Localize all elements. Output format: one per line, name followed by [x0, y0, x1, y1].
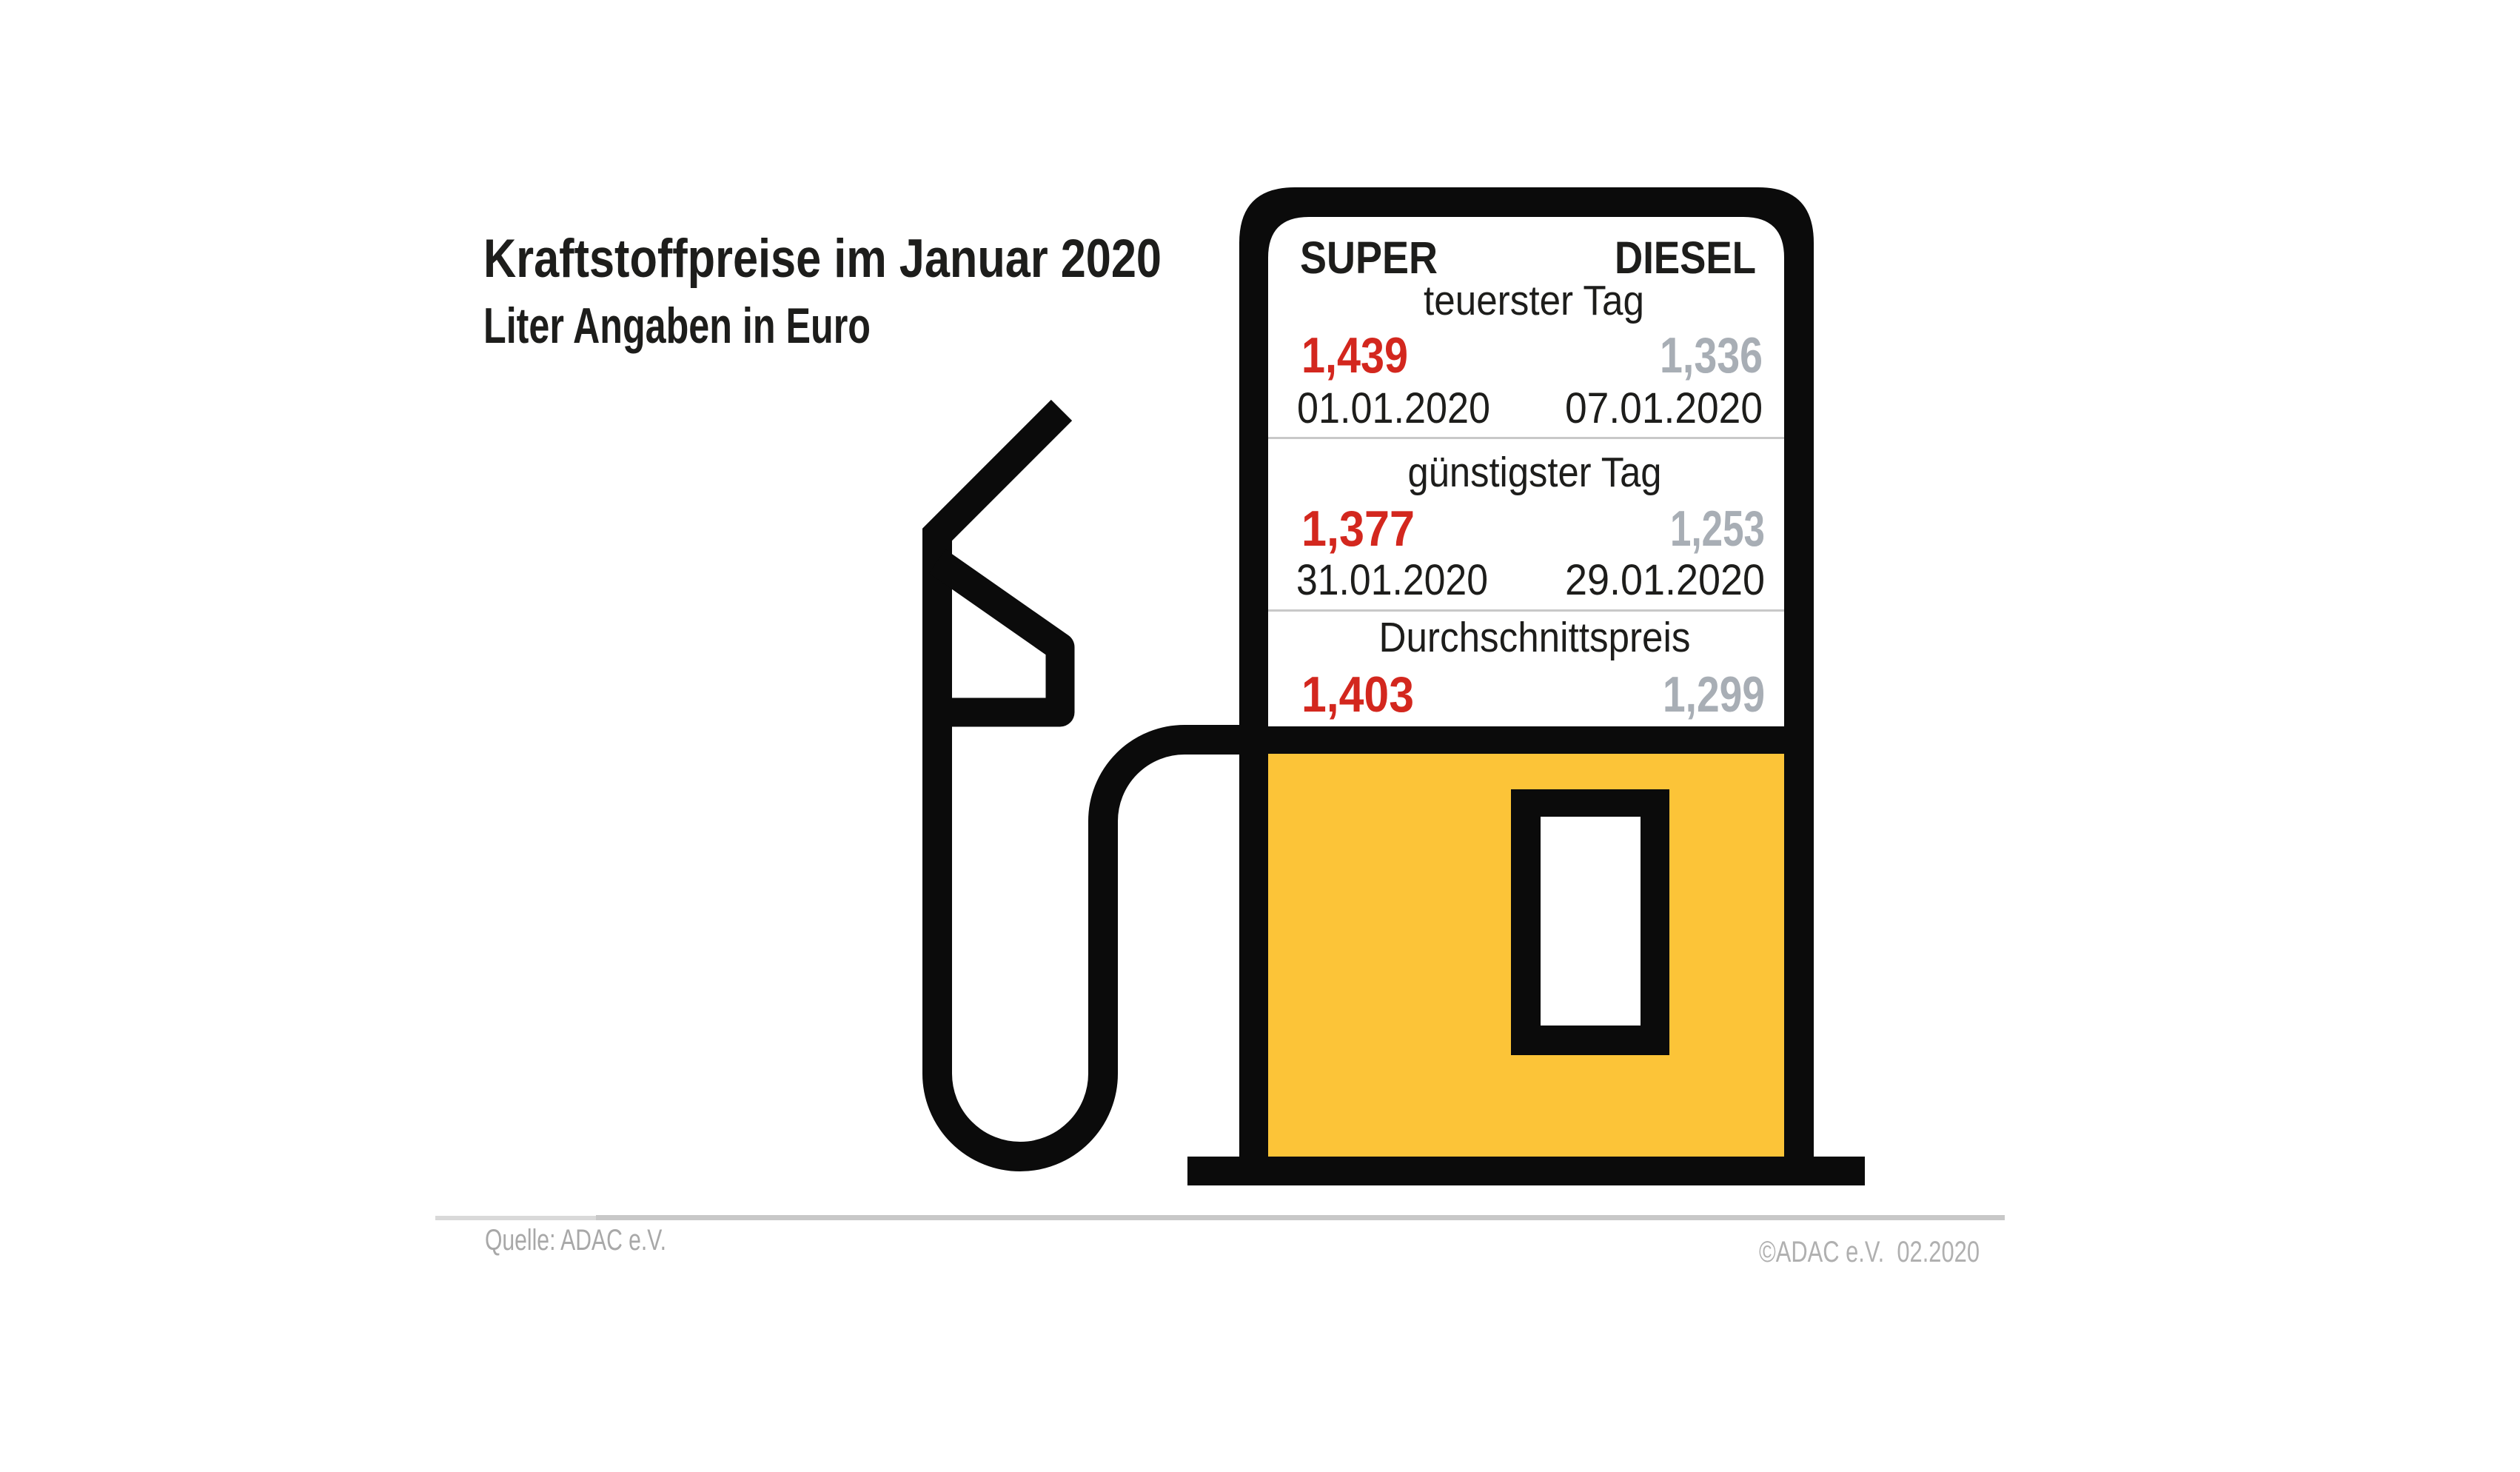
- svg-text:SUPER: SUPER: [1300, 232, 1438, 283]
- svg-text:29.01.2020: 29.01.2020: [1565, 556, 1765, 604]
- svg-text:1,253: 1,253: [1670, 501, 1765, 557]
- svg-text:Durchschnittspreis: Durchschnittspreis: [1379, 614, 1691, 661]
- svg-text:Kraftstoffpreise im Januar 202: Kraftstoffpreise im Januar 2020: [483, 229, 1162, 289]
- svg-text:01.01.2020: 01.01.2020: [1297, 384, 1490, 432]
- svg-text:07.01.2020: 07.01.2020: [1565, 384, 1763, 432]
- svg-text:1,299: 1,299: [1663, 666, 1765, 723]
- svg-text:Quelle: ADAC e.V.: Quelle: ADAC e.V.: [485, 1224, 666, 1257]
- svg-text:teuerster Tag: teuerster Tag: [1424, 277, 1644, 324]
- svg-text:1,336: 1,336: [1660, 327, 1763, 384]
- svg-text:Liter Angaben in Euro: Liter Angaben in Euro: [483, 298, 871, 354]
- svg-text:1,377: 1,377: [1301, 501, 1415, 557]
- svg-text:1,403: 1,403: [1301, 666, 1414, 723]
- svg-text:©ADAC e.V. 02.2020: ©ADAC e.V. 02.2020: [1759, 1236, 1980, 1268]
- svg-text:günstigster Tag: günstigster Tag: [1408, 449, 1662, 496]
- svg-text:DIESEL: DIESEL: [1615, 232, 1756, 283]
- svg-text:31.01.2020: 31.01.2020: [1296, 556, 1488, 604]
- svg-text:1,439: 1,439: [1301, 327, 1408, 384]
